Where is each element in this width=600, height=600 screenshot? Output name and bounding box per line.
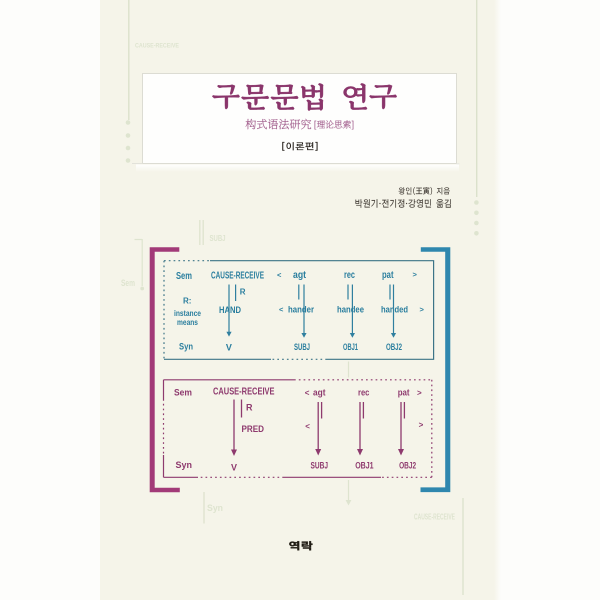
svg-text:rec: rec [344,270,355,281]
svg-text:R: R [240,287,246,296]
svg-text:rec: rec [358,388,369,399]
svg-text:CAUSE-RECEIVE: CAUSE-RECEIVE [414,513,455,522]
svg-text:<: < [305,389,310,398]
svg-text:Syn: Syn [207,503,223,513]
svg-text:pat: pat [382,270,394,281]
svg-text:SUBJ: SUBJ [311,460,329,471]
svg-text:Sem: Sem [121,278,135,288]
svg-text:Syn: Syn [176,460,193,471]
svg-text:SUBJ: SUBJ [294,342,310,352]
svg-text:handee: handee [337,304,364,314]
svg-text:V: V [226,343,232,353]
svg-text:agt: agt [313,388,326,399]
svg-text:HAND: HAND [219,305,241,315]
svg-text:Syn: Syn [179,342,193,353]
svg-text:<: < [305,422,310,431]
svg-text:<: < [279,305,284,314]
svg-text:pat: pat [398,388,410,399]
svg-text:>: > [420,305,425,314]
svg-text:<: < [277,271,282,280]
svg-text:handed: handed [381,304,408,314]
svg-text:>: > [417,389,422,398]
svg-text:agt: agt [293,270,307,281]
svg-text:Sem: Sem [176,271,192,282]
svg-text:>: > [413,270,418,279]
svg-text:V: V [231,463,238,474]
svg-text:CAUSE-RECEIVE: CAUSE-RECEIVE [211,270,264,281]
svg-text:OBJ2: OBJ2 [399,460,416,471]
svg-text:>: > [419,421,424,430]
svg-text:CAUSE-RECEIVE: CAUSE-RECEIVE [135,43,180,50]
svg-text:hander: hander [288,304,314,314]
svg-text:SUBJ: SUBJ [210,234,226,243]
svg-text:CAUSE-RECEIVE: CAUSE-RECEIVE [213,387,275,398]
svg-text:Sem: Sem [174,388,192,399]
svg-text:OBJ1: OBJ1 [343,342,358,352]
svg-text:OBJ1: OBJ1 [355,460,374,471]
svg-text:OBJ2: OBJ2 [386,342,402,352]
svg-text:PRED: PRED [242,424,265,435]
svg-text:R:: R: [183,297,192,306]
svg-text:means: means [177,318,198,327]
svg-text:instance: instance [174,309,201,318]
svg-text:R: R [246,403,253,413]
